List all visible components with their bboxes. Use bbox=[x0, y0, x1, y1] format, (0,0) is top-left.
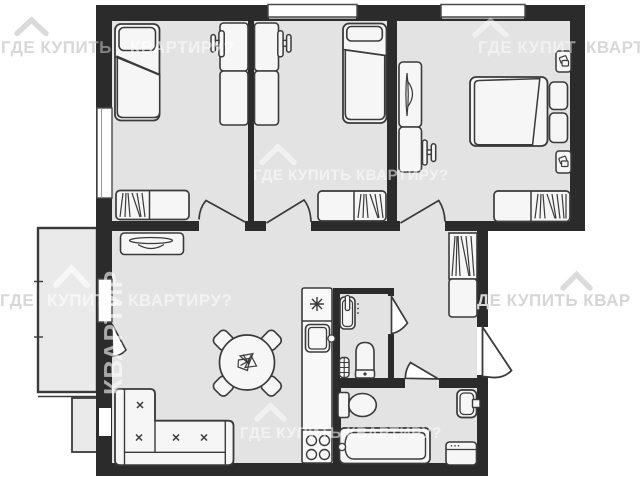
svg-text:ГДЕ КУПИТ: ГДЕ КУПИТ bbox=[478, 38, 576, 57]
svg-text:ГДЕ КУПИТЬ КВАРТИРУ?: ГДЕ КУПИТЬ КВАРТИРУ? bbox=[253, 167, 449, 184]
svg-text:ГДЕ: ГДЕ bbox=[0, 291, 34, 310]
svg-text:КВАРТИРУ?: КВАРТИРУ? bbox=[130, 38, 234, 57]
svg-text:ГДЕ КУПИТЬ: ГДЕ КУПИТЬ bbox=[1, 38, 112, 57]
svg-text:ГДЕ КУПИТЬ КВАРТИРУ?: ГДЕ КУПИТЬ КВАРТИРУ? bbox=[240, 425, 442, 442]
svg-text:КВАРТИРУ?: КВАРТИРУ? bbox=[128, 291, 232, 310]
svg-text:ДЕ КУПИТЬ КВАР: ДЕ КУПИТЬ КВАР bbox=[477, 291, 631, 310]
svg-text:КВАРТИР: КВАРТИР bbox=[98, 270, 128, 395]
svg-text:КВАРТ: КВАРТ bbox=[586, 38, 640, 57]
